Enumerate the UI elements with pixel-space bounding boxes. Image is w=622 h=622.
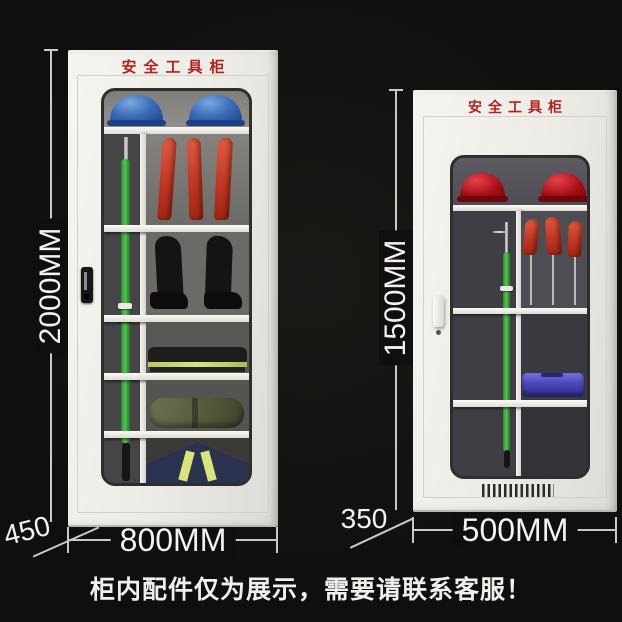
large-width-label: 800MM — [111, 522, 236, 558]
empty-compartment — [521, 407, 587, 476]
insulated-glove — [522, 219, 539, 255]
boots-compartment — [146, 232, 249, 315]
small-width-label: 500MM — [453, 512, 578, 548]
shelf — [104, 315, 249, 322]
keyhole — [84, 294, 89, 299]
glove-stand-compartment — [521, 211, 587, 308]
caption-text: 柜内配件仅为展示，需要请联系客服！ — [0, 570, 622, 606]
large-door-lock-handle — [81, 267, 93, 303]
insulated-glove — [567, 221, 583, 257]
small-depth-label: 350 — [332, 503, 397, 535]
rod-clamp — [500, 286, 513, 291]
insulated-glove — [545, 217, 563, 255]
shelf — [104, 225, 249, 232]
small-door-handle — [433, 295, 444, 327]
safety-boot-foot — [204, 292, 242, 309]
insulated-glove — [214, 138, 233, 220]
rod-metal-top — [505, 222, 508, 253]
folded-clothing — [148, 347, 247, 362]
large-cabinet-title: 安全工具柜 — [68, 56, 278, 77]
vent-grille — [482, 484, 554, 497]
lock-slot — [84, 272, 87, 290]
rod-clamp — [118, 303, 132, 309]
small-width-right-tick — [615, 517, 617, 543]
glove-stand-rod — [574, 257, 576, 305]
red-helmet-left — [460, 173, 505, 199]
small-door-lock — [436, 330, 441, 335]
glove-compartment — [146, 134, 249, 225]
shelf — [104, 373, 249, 380]
small-height-label: 1500MM — [379, 231, 413, 366]
large-cabinet-window — [101, 88, 252, 486]
safety-boot-foot — [150, 292, 188, 309]
large-helmet-compartment — [104, 91, 249, 127]
safety-boot — [205, 236, 233, 297]
blue-helmet-left — [110, 95, 163, 123]
duffel-compartment — [146, 380, 249, 431]
large-height-label: 2000MM — [34, 219, 68, 354]
duffel-strap — [192, 398, 198, 428]
small-cabinet-title: 安全工具柜 — [413, 97, 617, 117]
small-helmet-compartment — [453, 158, 587, 205]
red-helmet-right — [541, 173, 586, 199]
rod-dark-end — [504, 450, 510, 468]
glove-stand-rod — [530, 255, 532, 305]
small-width-left-tick — [412, 517, 414, 543]
glove-stand-rod — [552, 255, 554, 305]
small-cabinet: 安全工具柜 — [413, 90, 617, 512]
blue-helmet-right — [189, 95, 242, 123]
insulated-glove — [187, 138, 204, 220]
product-photo: 2000MM 800MM 450 安全工具柜 — [0, 0, 622, 622]
rod-metal-tip — [124, 137, 128, 161]
small-height-top-tick — [389, 89, 403, 91]
rod-dark-end — [122, 443, 130, 481]
case-compartment — [521, 314, 587, 400]
tool-case-handle — [541, 373, 563, 377]
jacket-compartment — [146, 438, 249, 483]
large-cabinet: 安全工具柜 — [68, 50, 278, 527]
large-height-top-tick — [44, 49, 58, 51]
folded-clothing-compartment — [146, 322, 249, 373]
safety-boot — [154, 235, 183, 296]
small-cabinet-window — [450, 155, 590, 479]
large-width-right-tick — [276, 527, 278, 553]
shelf — [453, 400, 587, 407]
shelf — [104, 431, 249, 438]
folded-clothing-base — [150, 367, 245, 372]
safety-jacket — [146, 441, 249, 483]
shelf — [104, 127, 249, 134]
insulated-glove — [157, 138, 177, 220]
insulated-rod-large — [121, 159, 130, 443]
insulated-rod-small — [503, 252, 510, 452]
